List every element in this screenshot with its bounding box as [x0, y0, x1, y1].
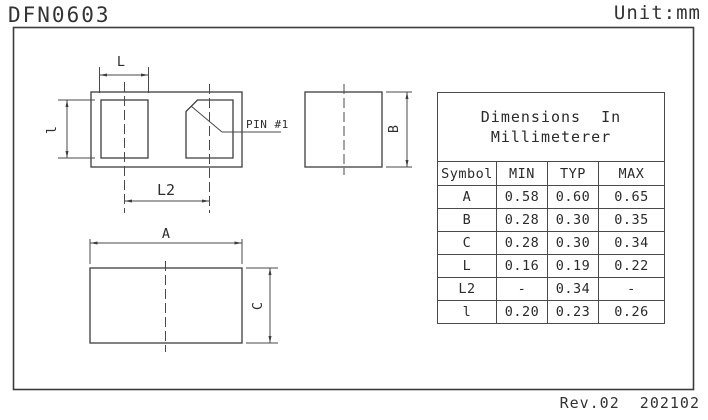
table-cell: 0.23 [548, 301, 599, 324]
table-header-row: Symbol MIN TYP MAX [438, 162, 665, 186]
table-cell: B [438, 209, 497, 232]
dim-label-l: l [44, 126, 60, 134]
table-cell: L2 [438, 278, 497, 301]
table-title-line2: Millimeterer [438, 127, 664, 147]
table-cell: 0.34 [548, 278, 599, 301]
table-cell: 0.26 [599, 301, 665, 324]
table-title: Dimensions In Millimeterer [438, 93, 665, 162]
table-cell: l [438, 301, 497, 324]
table-cell: A [438, 186, 497, 209]
table-row: C 0.28 0.30 0.34 [438, 232, 665, 255]
dim-label-L2: L2 [157, 181, 175, 199]
table-cell: 0.28 [497, 232, 548, 255]
col-header-max: MAX [599, 162, 665, 186]
drawing-sheet: DFN0603 Unit:mm Rev.02 202102 L [0, 0, 708, 420]
table-cell: - [599, 278, 665, 301]
table-cell: 0.65 [599, 186, 665, 209]
dimensions-table: Dimensions In Millimeterer Symbol MIN TY… [437, 92, 665, 324]
table-title-line1: Dimensions In [438, 107, 664, 127]
table-cell: 0.30 [548, 209, 599, 232]
side-view: B [305, 84, 412, 175]
front-view: A C [90, 226, 278, 352]
table-cell: 0.16 [497, 255, 548, 278]
dim-label-L: L [117, 54, 125, 70]
table-cell: 0.22 [599, 255, 665, 278]
table-cell: 0.58 [497, 186, 548, 209]
col-header-min: MIN [497, 162, 548, 186]
table-row: l 0.20 0.23 0.26 [438, 301, 665, 324]
table-row: L 0.16 0.19 0.22 [438, 255, 665, 278]
dim-label-C: C [250, 302, 266, 310]
dim-label-A: A [162, 226, 170, 242]
dim-label-B: B [386, 125, 402, 133]
col-header-symbol: Symbol [438, 162, 497, 186]
table-cell: 0.30 [548, 232, 599, 255]
table-cell: L [438, 255, 497, 278]
table-cell: C [438, 232, 497, 255]
table-row: A 0.58 0.60 0.65 [438, 186, 665, 209]
table-row: L2 - 0.34 - [438, 278, 665, 301]
table-cell: 0.28 [497, 209, 548, 232]
table-cell: 0.35 [599, 209, 665, 232]
table-cell: 0.34 [599, 232, 665, 255]
table-row: B 0.28 0.30 0.35 [438, 209, 665, 232]
pin1-label: PIN #1 [246, 118, 289, 131]
col-header-typ: TYP [548, 162, 599, 186]
top-view: L l L2 PIN #1 [44, 54, 289, 213]
table-cell: - [497, 278, 548, 301]
table-cell: 0.60 [548, 186, 599, 209]
table-cell: 0.20 [497, 301, 548, 324]
table-cell: 0.19 [548, 255, 599, 278]
